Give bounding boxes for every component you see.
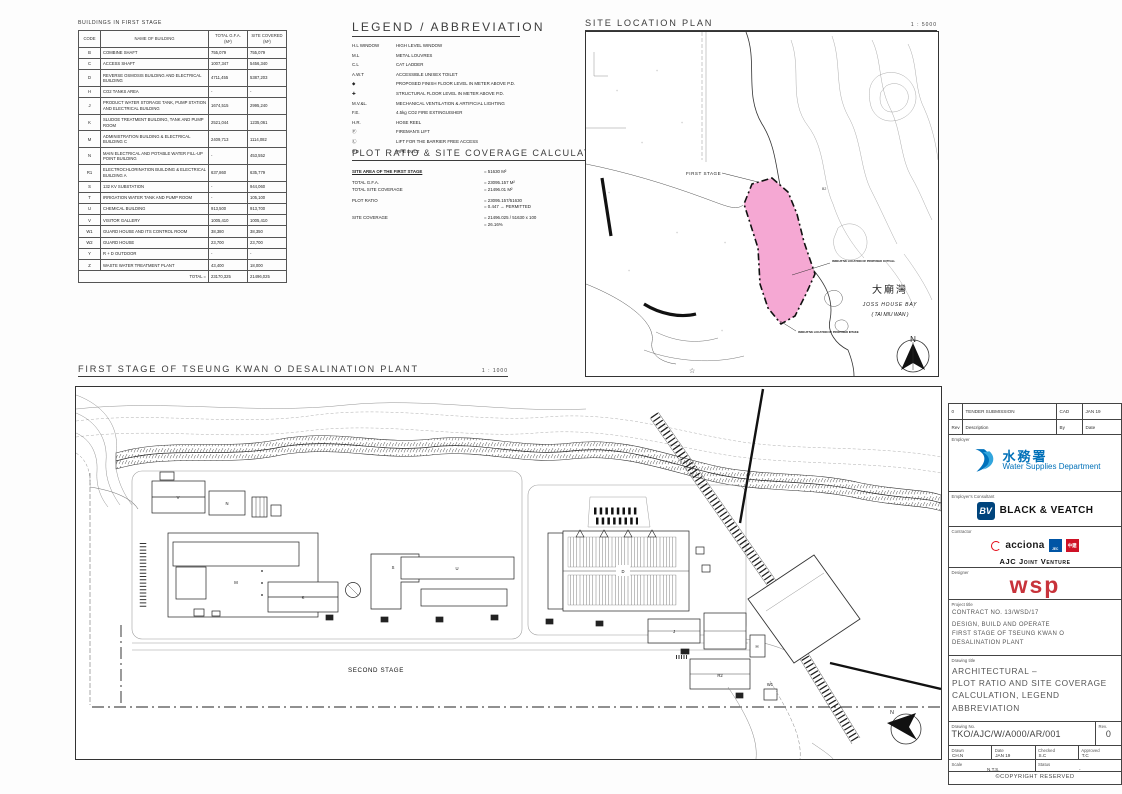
table-row: R1 ELECTROCHLORINATION BUILDING & ELECTR… (79, 164, 287, 181)
legend-symbol: Ⓛ (352, 139, 396, 145)
legend-item: H.R. HOSE REEL (352, 120, 574, 130)
cell-gfa: - (209, 181, 248, 192)
legend-text: MECHANICAL VENTILATION & ARTIFICIAL LIGH… (396, 101, 505, 106)
jec-logo: JEC (1049, 539, 1062, 552)
scale-cell: Scale N.T.S. (949, 760, 1036, 771)
legend-text: STRUCTURAL FLOOR LEVEL IN METER ABOVE P.… (396, 91, 504, 96)
title-block: 0 TENDER SUBMISSION CAD JAN 19 Rev Descr… (948, 403, 1122, 785)
coast-contours (76, 395, 941, 511)
table-row: N MAIN ELECTRICAL AND POTABLE WATER FILL… (79, 148, 287, 165)
site-location-plan: +++ +++ +++ FIRST STAGE (585, 31, 939, 377)
contractor-name: AJC Joint Venture (949, 557, 1121, 566)
cell-code: Y (79, 248, 101, 259)
drawing-number: TKO/AJC/W/A000/AR/001 (949, 729, 1095, 739)
legend-text: METAL LOUVRES (396, 53, 432, 58)
plot-ratio-label (352, 222, 484, 228)
cell-gfa: - (209, 86, 248, 97)
main-plan-header: FIRST STAGE OF TSEUNG KWAN O DESALINATIO… (78, 364, 508, 377)
table-row: C ACCESS SHAFT 1007,347 5456,340 (79, 58, 287, 69)
description-col-header: Description (963, 420, 1057, 434)
label-h: H (755, 644, 758, 649)
cell-code: W2 (79, 237, 101, 248)
drawing-sheet: { "colors":{"highlight_pink":"#F5A8D3","… (0, 0, 1122, 794)
cell-gfa: 1007,347 (209, 58, 248, 69)
plot-ratio-line: = 26.16% (352, 222, 588, 228)
revision-table: 0 TENDER SUBMISSION CAD JAN 19 Rev Descr… (949, 404, 1121, 435)
drawing-number-cell: Drawing No. TKO/AJC/W/A000/AR/001 (949, 722, 1096, 745)
wsd-logo: 水務署 Water Supplies Department (949, 442, 1121, 480)
cell-code: S (79, 181, 101, 192)
ajc-logos: acciona JEC 中建 (949, 536, 1121, 556)
cell-gfa: 2521,044 (209, 114, 248, 131)
plot-ratio-value: = 26.16% (484, 222, 503, 228)
site-location-header: SITE LOCATION PLAN 1 : 5000 (585, 18, 937, 31)
drawing-title-section: Drawing title ARCHITECTURAL – PLOT RATIO… (949, 656, 1121, 722)
seawall-bars (602, 178, 696, 316)
bay-labels: 大廟灣 JOSS HOUSE BAY ( TAI MIU WAN ) (862, 283, 917, 318)
approved-cell: Approved T.C (1079, 746, 1121, 759)
site-location-scale: 1 : 5000 (911, 22, 937, 28)
cell-gfa: 43,400 (209, 260, 248, 271)
south-cluster (648, 613, 777, 700)
plot-ratio-title: PLOT RATIO & SITE COVERAGE CALCULATION: (352, 148, 588, 161)
cell-code: M (79, 131, 101, 148)
cell-code: J (79, 98, 101, 115)
cell-covered: 1114,082 (248, 131, 287, 148)
plot-ratio-value: = 0.447 → PERMITTED (484, 204, 531, 210)
table-body: B COMBINE SHAFT 755,079 755,079 C ACCESS… (79, 47, 287, 271)
drawing-number-section: Drawing No. TKO/AJC/W/A000/AR/001 Rev. 0 (949, 722, 1121, 746)
label-d: D (621, 569, 624, 574)
checked-value: S.C (1036, 753, 1078, 758)
project-title-text: CONTRACT NO. 13/WSD/17 DESIGN, BUILD AND… (949, 607, 1121, 649)
legend-title: LEGEND / ABBREVIATION (352, 20, 520, 37)
cell-gfa: 755,079 (209, 47, 248, 58)
main-plan-scale: 1 : 1000 (482, 368, 508, 374)
rev-cell: Rev. 0 (1096, 722, 1121, 745)
parking-bars (588, 497, 650, 527)
legend-symbol: Ⓕ (352, 129, 396, 135)
first-stage-highlight (744, 178, 815, 324)
survey-marks: +++ +++ +++ (608, 69, 726, 333)
contractor-label: Contractor (949, 527, 1121, 534)
buildings-table-title: BUILDINGS IN FIRST STAGE (78, 20, 288, 28)
main-plan-map: V N M K D U S J H R2 W1 SECOND STAGE N (76, 387, 941, 759)
plot-ratio-value: = 21496.01 M² (484, 187, 512, 193)
total-gfa: 23170,325 (209, 271, 248, 282)
designer-section: Designer wsp (949, 568, 1121, 600)
table-row: U CHEMICAL BUILDING 913,500 913,700 (79, 203, 287, 214)
column-header: TOTAL G.F.A. (M²) (209, 31, 248, 48)
bv-icon: BV (977, 502, 995, 520)
cell-covered: 105,100 (248, 192, 287, 203)
cell-name: CHEMICAL BUILDING (101, 203, 209, 214)
table-header-row: CODENAME OF BUILDINGTOTAL G.F.A. (M²)SIT… (79, 31, 287, 48)
north-arrow: N (897, 335, 929, 372)
table-row: W1 GUARD HOUSE AND ITS CONTROL ROOM 38,3… (79, 226, 287, 237)
buildings-table-section: BUILDINGS IN FIRST STAGE CODENAME OF BUI… (78, 20, 288, 283)
signature-row: Drawn CH.N Date JAN 19 Checked S.C Appro… (949, 746, 1121, 760)
cell-name: PRODUCT WATER STORAGE TANK, PUMP STATION… (101, 98, 209, 115)
svg-text:FIRST STAGE: FIRST STAGE (686, 171, 721, 176)
cell-code: V (79, 215, 101, 226)
table-row: V VISITOR GALLERY 1005,410 1005,410 (79, 215, 287, 226)
rev-description: TENDER SUBMISSION (963, 404, 1057, 419)
svg-text:+: + (721, 329, 723, 333)
copyright-notice: ©COPYRIGHT RESERVED (949, 772, 1121, 782)
table-row: H CO2 TANKS AREA - - (79, 86, 287, 97)
cell-covered: 913,700 (248, 203, 287, 214)
legend-item: A.W.T ACCESSIBLE UNISEX TOILET (352, 72, 574, 82)
svg-text:+: + (656, 69, 658, 73)
legend-symbol: C.L (352, 62, 396, 67)
rev-by: CAD (1057, 404, 1083, 419)
label-v: V (177, 495, 180, 500)
legend-text: CAT LADDER (396, 62, 423, 67)
label-s: S (392, 565, 395, 570)
drawn-value: CH.N (949, 753, 991, 758)
drawn-cell: Drawn CH.N (949, 746, 992, 759)
legend-item: F.E. 4.5kg CO2 FIRE EXTINGUISHER (352, 110, 574, 120)
rev-number: 0 (949, 404, 963, 419)
drawing-title-text: ARCHITECTURAL – PLOT RATIO AND SITE COVE… (949, 663, 1121, 715)
cell-name: ADMINISTRATION BUILDING & ELECTRICAL BUI… (101, 131, 209, 148)
employer-section: Employer 水務署 Water Supplies Department (949, 435, 1121, 492)
cell-gfa: - (209, 248, 248, 259)
legend-text: FIREMAN'S LIFT (396, 129, 430, 134)
revision-entry-row: 0 TENDER SUBMISSION CAD JAN 19 (949, 404, 1121, 419)
legend-symbol: F.E. (352, 110, 396, 115)
project-title-section: Project title CONTRACT NO. 13/WSD/17 DES… (949, 600, 1121, 656)
label-m: M (234, 580, 238, 585)
cell-name: ACCESS SHAFT (101, 58, 209, 69)
main-plan: V N M K D U S J H R2 W1 SECOND STAGE N (75, 386, 942, 760)
svg-text:INDICATIVE LOCATION OF PROPOSE: INDICATIVE LOCATION OF PROPOSED OUTFALL (832, 259, 896, 263)
column-header: NAME OF BUILDING (101, 31, 209, 48)
wsd-swoosh-icon (970, 447, 998, 475)
scale-value: N.T.S. (949, 767, 1035, 772)
legend-item: ✚ STRUCTURAL FLOOR LEVEL IN METER ABOVE … (352, 91, 574, 101)
cell-gfa: - (209, 148, 248, 165)
cell-code: N (79, 148, 101, 165)
rev-date: JAN 19 (1083, 404, 1121, 419)
cell-code: C (79, 58, 101, 69)
cell-covered: 453,552 (248, 148, 287, 165)
legend-text: PROPOSED FINISH FLOOR LEVEL IN METER ABO… (396, 81, 515, 86)
main-plan-title: FIRST STAGE OF TSEUNG KWAN O DESALINATIO… (78, 364, 419, 374)
svg-text:( TAI MIU WAN ): ( TAI MIU WAN ) (871, 312, 908, 318)
cell-code: W1 (79, 226, 101, 237)
svg-text:INDICATIVE LOCATION OF PROPOSE: INDICATIVE LOCATION OF PROPOSED INTAKE (798, 330, 859, 334)
approved-value: T.C (1079, 753, 1121, 758)
cell-covered: 5387,203 (248, 70, 287, 87)
second-stage-label: SECOND STAGE (348, 667, 404, 674)
cell-covered: 755,079 (248, 47, 287, 58)
cell-name: VISITOR GALLERY (101, 215, 209, 226)
date-cell: Date JAN 19 (992, 746, 1035, 759)
table-row: B COMBINE SHAFT 755,079 755,079 (79, 47, 287, 58)
svg-text:JOSS HOUSE BAY: JOSS HOUSE BAY (862, 302, 917, 308)
acciona-wordmark: acciona (1005, 540, 1044, 551)
designer-name: wsp (1010, 574, 1061, 597)
table-row: Z WASTE WATER TREATMENT PLANT 43,400 18,… (79, 260, 287, 271)
cell-covered: 38,350 (248, 226, 287, 237)
legend-item: M.L METAL LOUVRES (352, 53, 574, 63)
cell-covered: 23,700 (248, 237, 287, 248)
svg-text:+: + (628, 269, 630, 273)
cell-gfa: 23,700 (209, 237, 248, 248)
legend-symbol: ◆ (352, 81, 396, 87)
column-header: SITE COVERED (M²) (248, 31, 287, 48)
date-value: JAN 19 (992, 753, 1034, 758)
wsp-logo: wsp (949, 575, 1121, 597)
date-col-header: Date (1083, 420, 1121, 434)
cell-name: SLUDGE TREATMENT BUILDING, TANK AND PUMP… (101, 114, 209, 131)
legend-text: HOSE REEL (396, 120, 421, 125)
revision-header-row: Rev Description By Date (949, 419, 1121, 434)
site-location-title: SITE LOCATION PLAN (585, 18, 713, 28)
table-row: J PRODUCT WATER STORAGE TANK, PUMP STATI… (79, 98, 287, 115)
cell-covered: 5456,340 (248, 58, 287, 69)
consultant-section: Employer's Consultant BV BLACK & VEATCH (949, 492, 1121, 527)
cell-covered: 1005,410 (248, 215, 287, 226)
legend-text: 4.5kg CO2 FIRE EXTINGUISHER (396, 110, 462, 115)
legend-text: HIGH LEVEL WINDOW (396, 43, 442, 48)
label-r2: R2 (717, 673, 723, 678)
table-row: Y R + D OUTDOOR - - (79, 248, 287, 259)
legend-item: Ⓕ FIREMAN'S LIFT (352, 129, 574, 139)
table-row: T IRRIGATION WATER TANK AND PUMP ROOM - … (79, 192, 287, 203)
legend-item: C.L CAT LADDER (352, 62, 574, 72)
svg-text:大廟灣: 大廟灣 (872, 283, 908, 296)
cell-name: WASTE WATER TREATMENT PLANT (101, 260, 209, 271)
cell-name: GUARD HOUSE AND ITS CONTROL ROOM (101, 226, 209, 237)
svg-text:+: + (724, 241, 726, 245)
table-total-row: TOTAL = 23170,325 21496,025 (79, 271, 287, 282)
cell-code: D (79, 70, 101, 87)
cell-name: ELECTROCHLORINATION BUILDING & ELECTRICA… (101, 164, 209, 181)
legend-item: M.V.&L. MECHANICAL VENTILATION & ARTIFIC… (352, 101, 574, 111)
site-location-map: +++ +++ +++ FIRST STAGE (586, 32, 938, 376)
cell-code: T (79, 192, 101, 203)
cell-gfa: 913,500 (209, 203, 248, 214)
cell-gfa: 637,860 (209, 164, 248, 181)
plot-ratio-section: PLOT RATIO & SITE COVERAGE CALCULATION: … (352, 148, 588, 228)
north-arrow: N (887, 710, 921, 744)
employer-name-en: Water Supplies Department (1003, 463, 1101, 472)
cell-covered: - (248, 86, 287, 97)
label-j: J (673, 629, 675, 634)
cell-covered: - (248, 248, 287, 259)
cell-covered: 1235,061 (248, 114, 287, 131)
total-covered: 21496,025 (248, 271, 287, 282)
cell-covered: 18,000 (248, 260, 287, 271)
legend-text: ACCESSIBLE UNISEX TOILET (396, 72, 458, 77)
by-col-header: By (1057, 420, 1083, 434)
cell-gfa: 38,380 (209, 226, 248, 237)
first-stage-callout: FIRST STAGE (686, 171, 758, 182)
svg-text:+: + (676, 231, 678, 235)
cell-code: K (79, 114, 101, 131)
legend-list: H.L WINDOW HIGH LEVEL WINDOW M.L METAL L… (352, 43, 574, 158)
legend-symbol: M.V.&L. (352, 101, 396, 106)
buildings-table: CODENAME OF BUILDINGTOTAL G.F.A. (M²)SIT… (78, 30, 287, 283)
cell-code: R1 (79, 164, 101, 181)
consultant-name: BLACK & VEATCH (1000, 505, 1094, 516)
svg-text:+: + (641, 141, 643, 145)
legend-item: H.L WINDOW HIGH LEVEL WINDOW (352, 43, 574, 53)
table-row: S 132 KV SUBSTATION - 944,060 (79, 181, 287, 192)
black-veatch-logo: BV BLACK & VEATCH (949, 499, 1121, 523)
cell-name: COMBINE SHAFT (101, 47, 209, 58)
cell-name: CO2 TANKS AREA (101, 86, 209, 97)
cell-covered: 635,779 (248, 164, 287, 181)
buildings (152, 472, 603, 626)
cell-name: MAIN ELECTRICAL AND POTABLE WATER FILL-U… (101, 148, 209, 165)
legend-section: LEGEND / ABBREVIATION H.L WINDOW HIGH LE… (352, 20, 574, 158)
star-marker: ☆ (689, 367, 695, 375)
label-u: U (455, 566, 458, 571)
cell-name: GUARD HOUSE (101, 237, 209, 248)
cell-covered: 2995,240 (248, 98, 287, 115)
plot-ratio-value: = 51630 M² (484, 169, 506, 175)
legend-symbol: A.W.T (352, 72, 396, 77)
svg-text:+: + (681, 121, 683, 125)
contractor-section: Contractor acciona JEC 中建 AJC Joint Vent… (949, 527, 1121, 568)
cscec-logo: 中建 (1066, 539, 1079, 552)
acciona-swirl-icon (991, 541, 1001, 551)
table-row: K SLUDGE TREATMENT BUILDING, TANK AND PU… (79, 114, 287, 131)
legend-symbol: ✚ (352, 91, 396, 97)
cell-gfa: 4711,455 (209, 70, 248, 87)
status-cell: Status - (1036, 760, 1122, 771)
label-n: N (225, 501, 228, 506)
cell-code: U (79, 203, 101, 214)
table-row: W2 GUARD HOUSE 23,700 23,700 (79, 237, 287, 248)
legend-symbol: H.R. (352, 120, 396, 125)
cell-name: REVERSE OSMOSIS BUILDING AND ELECTRICAL … (101, 70, 209, 87)
cell-code: B (79, 47, 101, 58)
legend-symbol: M.L (352, 53, 396, 58)
rev-col-header: Rev (949, 420, 963, 434)
rev-cell-value: 0 (1096, 729, 1121, 739)
cell-name: 132 KV SUBSTATION (101, 181, 209, 192)
label-k: K (302, 595, 305, 600)
cell-gfa: 1674,515 (209, 98, 248, 115)
cell-code: Z (79, 260, 101, 271)
total-label: TOTAL = (79, 271, 209, 282)
cell-name: R + D OUTDOOR (101, 248, 209, 259)
legend-text: LIFT FOR THE BARRIER FREE ACCESS (396, 139, 478, 144)
cell-covered: 944,060 (248, 181, 287, 192)
svg-text:N: N (890, 710, 894, 716)
scale-status-row: Scale N.T.S. Status - (949, 760, 1121, 772)
svg-text:+: + (608, 191, 610, 195)
ro-building (548, 530, 710, 611)
column-header: CODE (79, 31, 101, 48)
hill-label: B2 (822, 187, 826, 191)
table-row: M ADMINISTRATION BUILDING & ELECTRICAL B… (79, 131, 287, 148)
status-value: - (1036, 767, 1122, 772)
cell-name: IRRIGATION WATER TANK AND PUMP ROOM (101, 192, 209, 203)
label-w1: W1 (767, 682, 774, 687)
cell-gfa: 2409,713 (209, 131, 248, 148)
cell-code: H (79, 86, 101, 97)
islands (825, 290, 849, 331)
plot-ratio-list: SITE AREA OF THE FIRST STAGE = 51630 M² … (352, 169, 588, 228)
cell-gfa: 1005,410 (209, 215, 248, 226)
table-row: D REVERSE OSMOSIS BUILDING AND ELECTRICA… (79, 70, 287, 87)
cell-gfa: - (209, 192, 248, 203)
svg-text:+: + (616, 89, 618, 93)
legend-item: ◆ PROPOSED FINISH FLOOR LEVEL IN METER A… (352, 81, 574, 91)
legend-symbol: H.L WINDOW (352, 43, 396, 48)
checked-cell: Checked S.C (1036, 746, 1079, 759)
